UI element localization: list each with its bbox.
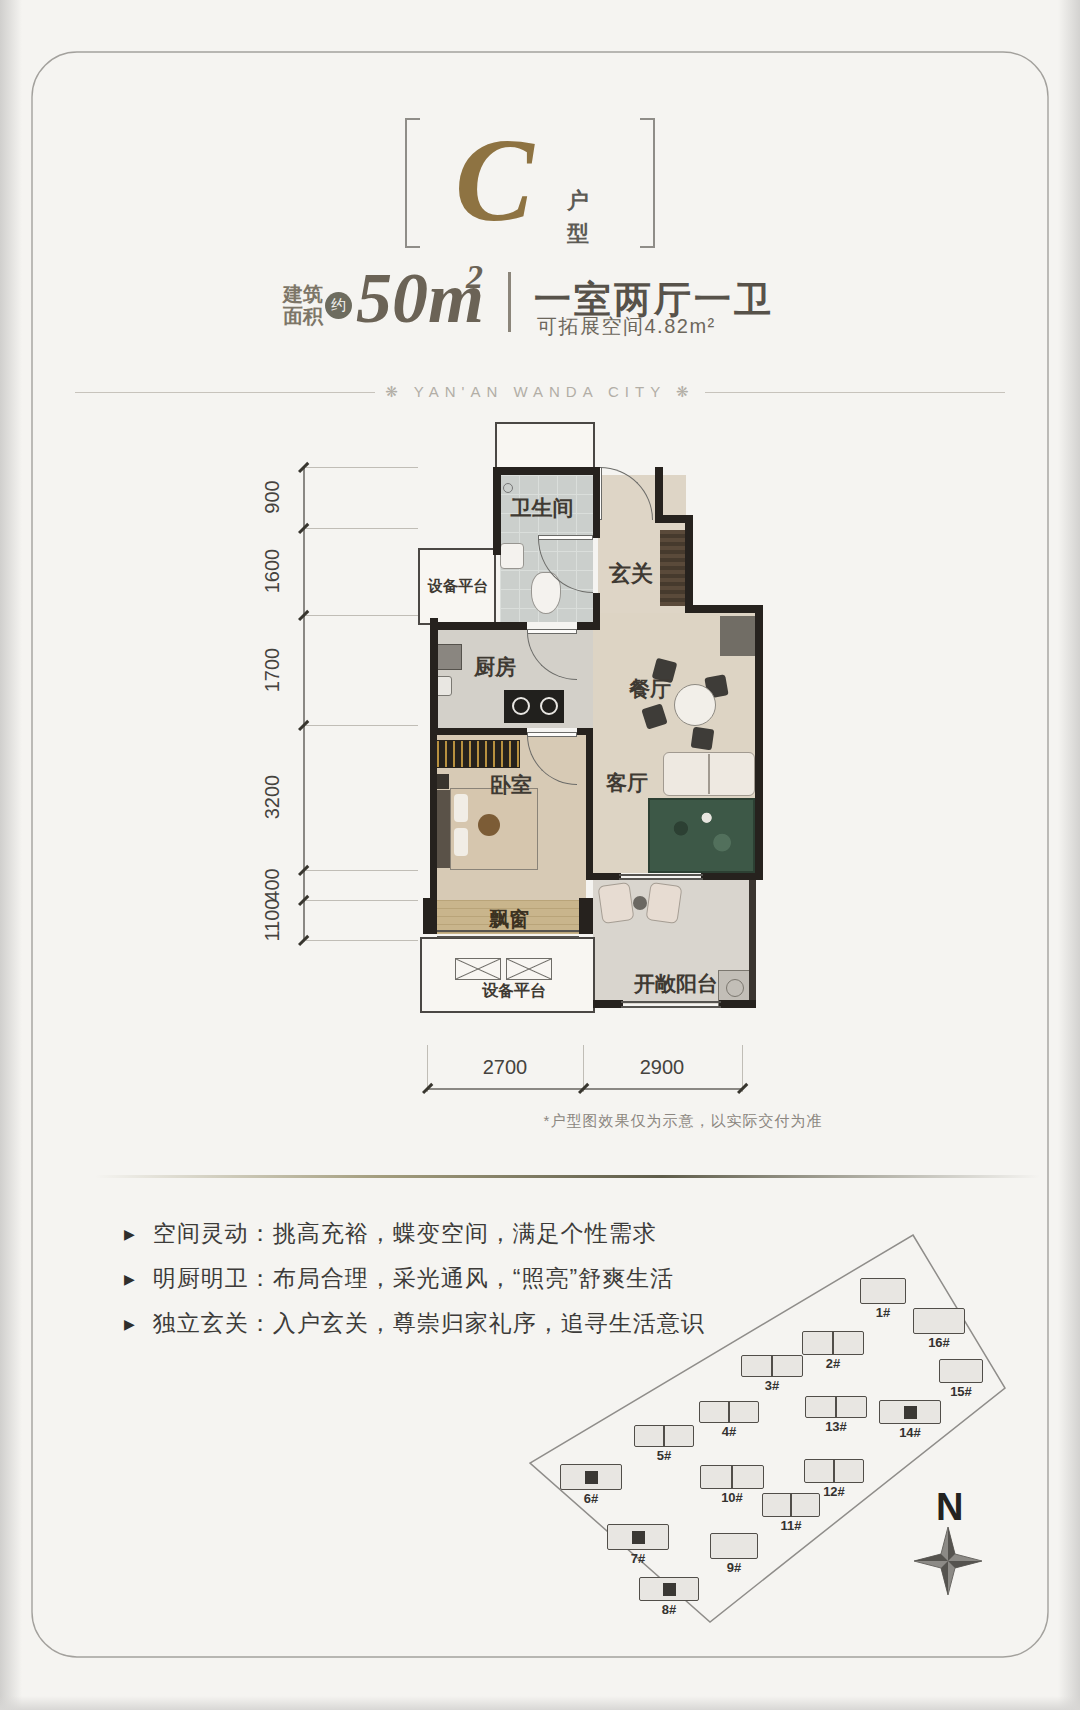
bathroom-door-leaf [538,535,593,540]
stove-burner-left [512,697,530,715]
area-prefix-line2: 面积 [283,305,323,327]
ext-line [306,467,418,468]
living-cabinet [720,616,755,656]
wardrobe [436,740,520,768]
sofa-cushion-line [708,754,710,794]
balcony-table [633,896,647,910]
brand-rule-right [705,392,1005,393]
wall [430,728,437,908]
sliding-door-1 [619,874,703,876]
unit-letter: C [455,122,534,240]
wall [719,1000,756,1008]
dim-bottom-2900: 2900 [622,1056,702,1079]
ext-line [306,900,418,901]
wall [593,467,600,538]
stove-burner-right [540,697,558,715]
wall [586,728,593,880]
wall [685,605,763,613]
area-value: 50m [356,262,484,334]
compass-star-icon [912,1525,984,1597]
dim-left-900: 900 [260,467,284,527]
wall [755,605,763,880]
triangle-bullet-icon: ▶ [124,1226,135,1242]
brand-row: ❋ YAN'AN WANDA CITY ❋ [75,383,1005,401]
dining-chair-3 [691,727,715,751]
equipment-platform-bottom-label: 设备平台 [482,981,546,1002]
compass-north-label: N [936,1486,963,1529]
wall [423,898,437,934]
equipment-platform-top-label: 设备平台 [428,577,488,596]
brand-text: ❋ YAN'AN WANDA CITY ❋ [385,383,694,401]
wall [593,873,621,880]
pillow-top [454,794,468,822]
unit-type-label: 户 型 [567,186,590,249]
pillow-bottom [454,828,468,856]
dim-left-1100: 1100 [260,890,284,950]
balcony-chair-right [646,882,683,924]
ext-line [306,528,418,529]
fridge [436,644,462,670]
disclaimer: *户型图效果仅为示意，以实际交付为准 [473,1112,893,1131]
equipment-x-right [506,958,552,980]
wall [430,618,438,735]
equipment-x-left [455,958,501,980]
wall [655,467,663,522]
dim-left-1700: 1700 [260,640,284,700]
dim-left-1600: 1600 [260,541,284,601]
bay-window-glass-2 [437,936,579,938]
wall [579,898,593,934]
tv-plant-wall [648,798,755,873]
dining-label: 餐厅 [629,675,671,703]
washbasin [500,543,524,569]
flyer-page: C 户 型 建筑 面积 约 50m 2 一室两厅一卫 可拓展空间4.82m² ❋… [0,0,1080,1710]
wall [430,728,527,735]
dim-bottom-2700: 2700 [465,1056,545,1079]
wall [685,515,693,613]
wall [593,1000,623,1008]
living-label: 客厅 [606,769,648,797]
wall [493,467,501,555]
kitchen-door-leaf [527,629,577,634]
bed-headboard [437,790,450,868]
foyer-label: 玄关 [609,559,653,589]
triangle-bullet-icon: ▶ [124,1316,135,1332]
balcony-rail-1 [621,1001,721,1003]
area-superscript: 2 [466,258,483,296]
bedroom-label: 卧室 [490,771,532,799]
area-divider [508,272,511,332]
ac-fan [726,979,744,997]
right-bracket [640,118,655,248]
wall [701,873,763,880]
balcony-chair-left [598,882,635,924]
expandable-space-note: 可拓展空间4.82m² [537,313,716,340]
bathroom-label: 卫生间 [511,494,574,522]
balcony-rail-2 [621,1006,721,1008]
wall [593,593,600,630]
bed-ornament [478,814,500,836]
bedroom-door-leaf [527,732,577,737]
dining-table [674,684,716,726]
ext-line [306,615,418,616]
ext-line [306,725,418,726]
kitchen-label: 厨房 [474,653,516,681]
dim-left-3200: 3200 [260,767,284,827]
ext-line [306,870,418,871]
approx-badge: 约 [325,292,352,319]
bay-window-label: 飘窗 [489,906,529,933]
sliding-door-2 [619,878,703,880]
balcony-label: 开敞阳台 [634,970,718,998]
unit-type-char-1: 户 [567,186,590,216]
left-bracket [405,118,420,248]
shaft-box [495,422,595,470]
wall [430,622,527,630]
section-divider [95,1175,1040,1178]
flue-symbol [503,483,513,493]
foyer-cabinet [660,530,686,606]
triangle-bullet-icon: ▶ [124,1271,135,1287]
ext-line [306,940,418,941]
brand-rule-left [75,392,375,393]
wall [493,467,600,475]
area-prefix: 建筑 面积 [283,283,323,327]
unit-type-char-2: 型 [567,219,590,249]
area-prefix-line1: 建筑 [283,283,323,305]
balcony-side-wall [749,880,756,1006]
